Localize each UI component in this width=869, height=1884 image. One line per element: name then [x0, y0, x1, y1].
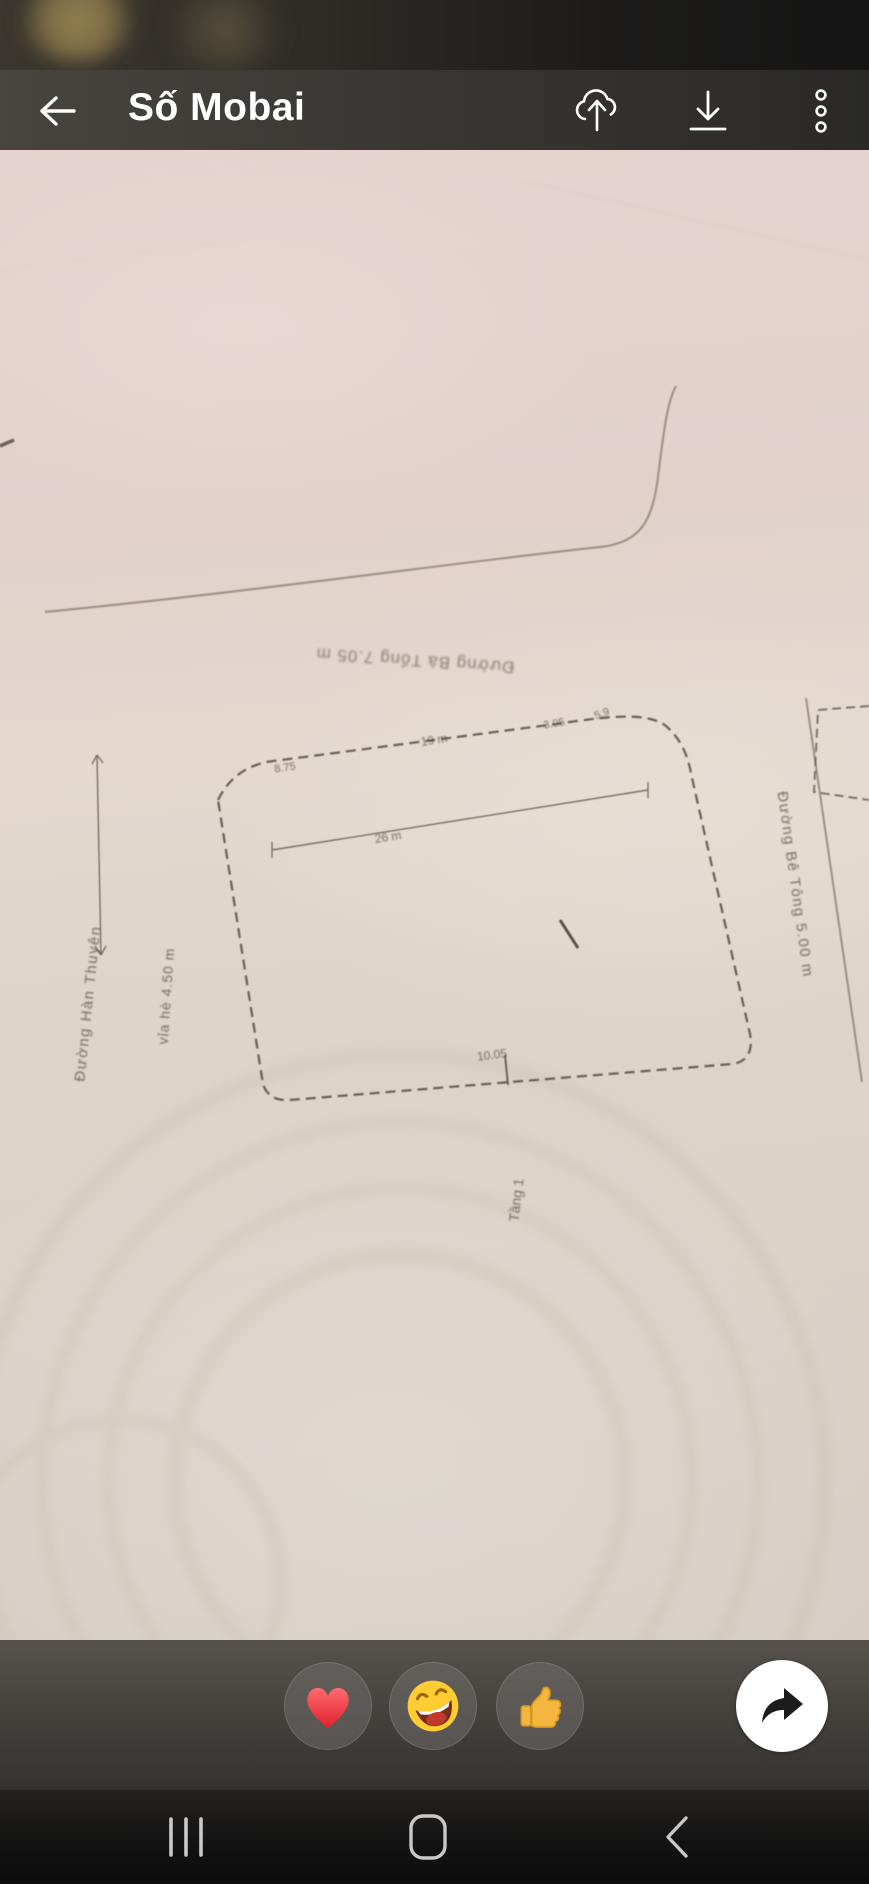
laughing-emoji-icon	[404, 1677, 462, 1735]
kebab-menu-icon	[795, 86, 847, 136]
home-icon	[406, 1812, 450, 1862]
photo-viewer[interactable]: Đường Bà Tổng 7.05 m Đường Hàn Thuyên vỉ…	[0, 150, 869, 1640]
share-button[interactable]	[736, 1660, 828, 1752]
nav-back-button[interactable]	[642, 1804, 712, 1870]
reaction-bar	[0, 1640, 869, 1790]
status-area-background	[0, 0, 869, 70]
image-viewer-screen: Số Mobai	[0, 0, 869, 1884]
share-forward-icon	[757, 1684, 807, 1728]
more-options-button[interactable]	[795, 86, 847, 136]
heart-reaction-button[interactable]	[284, 1662, 372, 1750]
page-title: Số Mobai	[128, 86, 305, 130]
thumbs-up-reaction-button[interactable]	[496, 1662, 584, 1750]
back-arrow-icon	[30, 88, 90, 134]
laugh-reaction-button[interactable]	[389, 1662, 477, 1750]
cloud-upload-button[interactable]	[571, 86, 623, 136]
survey-sketch-lines	[0, 150, 869, 1640]
background-blur-blob	[18, 0, 138, 62]
cloud-upload-icon	[571, 86, 623, 136]
back-button[interactable]	[30, 88, 90, 134]
heart-icon	[300, 1680, 356, 1732]
download-icon	[682, 86, 734, 136]
recents-button[interactable]	[151, 1804, 221, 1870]
header-bar: Số Mobai	[0, 70, 869, 150]
nav-back-icon	[659, 1812, 695, 1862]
home-button[interactable]	[393, 1804, 463, 1870]
android-navbar	[0, 1790, 869, 1884]
thumbs-up-icon	[512, 1678, 568, 1734]
download-button[interactable]	[682, 86, 734, 136]
background-blur-blob	[150, 0, 300, 70]
recents-icon	[163, 1813, 209, 1861]
